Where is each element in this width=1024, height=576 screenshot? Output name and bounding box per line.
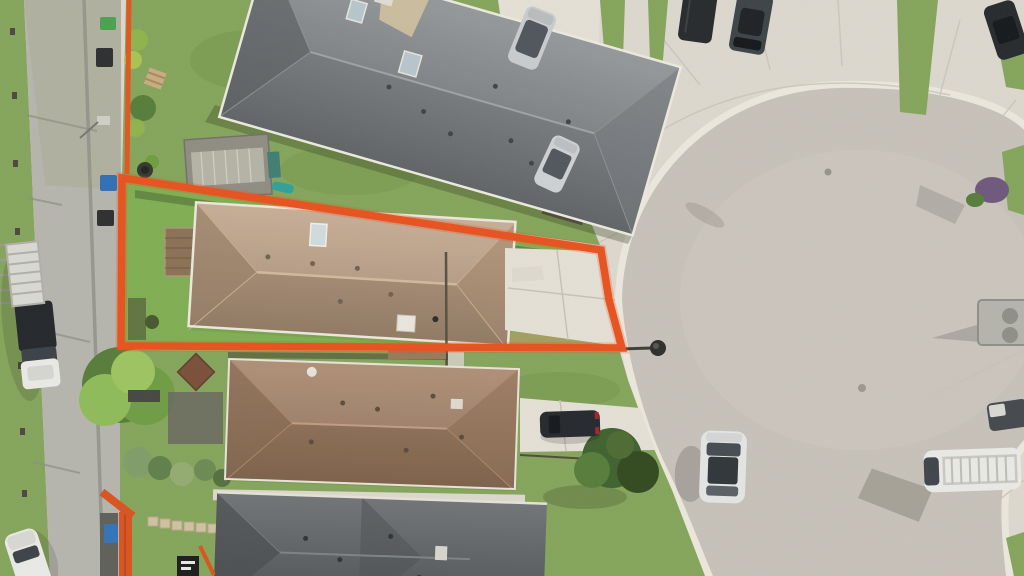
aerial-photo-stage bbox=[0, 0, 1024, 576]
aerial-scene bbox=[0, 0, 1024, 576]
photo-grain-overlay bbox=[0, 0, 1024, 576]
